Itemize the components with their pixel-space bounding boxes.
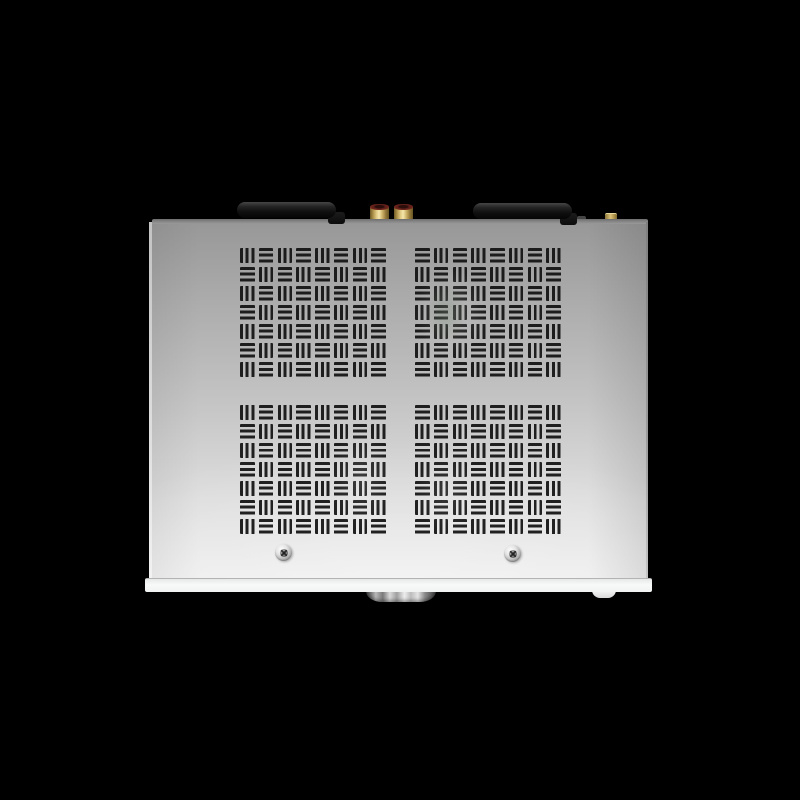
vent-row — [240, 462, 386, 477]
vent-row — [240, 362, 386, 377]
vent-slots-horizontal — [434, 424, 449, 439]
vent-slots-vertical — [278, 362, 293, 377]
vent-slots-vertical — [353, 519, 368, 534]
vent-slots-horizontal — [528, 286, 543, 301]
vent-slots-horizontal — [415, 443, 430, 458]
vent-slots-horizontal — [453, 405, 468, 420]
vent-slots-horizontal — [471, 500, 486, 515]
vent-slots-horizontal — [278, 305, 293, 320]
vent-slots-horizontal — [453, 286, 468, 301]
vent-slots-horizontal — [509, 424, 524, 439]
vent-slots-horizontal — [334, 286, 349, 301]
vent-slots-vertical — [546, 324, 561, 339]
screw-head-recess — [280, 549, 288, 557]
vent-slots-horizontal — [353, 267, 368, 282]
vent-slots-vertical — [528, 267, 543, 282]
vent-slots-vertical — [490, 500, 505, 515]
vent-slots-horizontal — [371, 519, 386, 534]
wifi-antenna-right — [473, 203, 572, 219]
vent-slots-horizontal — [315, 462, 330, 477]
vent-slots-horizontal — [528, 324, 543, 339]
vent-slots-vertical — [415, 424, 430, 439]
vent-row — [415, 481, 561, 496]
vent-slots-horizontal — [490, 519, 505, 534]
vent-slots-horizontal — [434, 343, 449, 358]
vent-slots-vertical — [434, 405, 449, 420]
vent-slots-vertical — [471, 443, 486, 458]
vent-slots-horizontal — [259, 481, 274, 496]
vent-slots-vertical — [453, 305, 468, 320]
vent-slots-horizontal — [315, 424, 330, 439]
vent-slots-vertical — [490, 343, 505, 358]
vent-slots-vertical — [471, 405, 486, 420]
vent-row — [240, 519, 386, 534]
vent-slots-horizontal — [453, 519, 468, 534]
vent-slots-vertical — [453, 462, 468, 477]
vent-slots-vertical — [509, 362, 524, 377]
vent-slots-horizontal — [528, 481, 543, 496]
vent-slots-vertical — [528, 462, 543, 477]
vent-slots-horizontal — [453, 362, 468, 377]
vent-slots-vertical — [509, 519, 524, 534]
vent-slots-vertical — [240, 286, 255, 301]
vent-slots-horizontal — [453, 481, 468, 496]
vent-row — [240, 481, 386, 496]
vent-slots-horizontal — [259, 443, 274, 458]
vent-slots-horizontal — [546, 343, 561, 358]
vent-slots-horizontal — [353, 424, 368, 439]
vent-slots-horizontal — [415, 286, 430, 301]
vent-slots-horizontal — [334, 248, 349, 263]
vent-slots-horizontal — [278, 462, 293, 477]
vent-slots-vertical — [259, 424, 274, 439]
vent-slots-vertical — [240, 248, 255, 263]
vent-slots-horizontal — [371, 362, 386, 377]
vent-row — [240, 443, 386, 458]
vent-slots-horizontal — [509, 500, 524, 515]
vent-slots-vertical — [528, 305, 543, 320]
vent-slots-vertical — [415, 343, 430, 358]
vent-slots-vertical — [434, 286, 449, 301]
vent-slots-vertical — [371, 267, 386, 282]
vent-row — [415, 286, 561, 301]
vent-slots-vertical — [296, 424, 311, 439]
vent-slots-horizontal — [278, 343, 293, 358]
vent-slots-vertical — [296, 267, 311, 282]
vent-row — [415, 267, 561, 282]
vent-row — [415, 443, 561, 458]
vent-slots-horizontal — [528, 362, 543, 377]
vent-slots-horizontal — [278, 500, 293, 515]
vent-slots-horizontal — [296, 519, 311, 534]
vent-slots-horizontal — [315, 267, 330, 282]
vent-slots-horizontal — [415, 405, 430, 420]
vent-slots-horizontal — [334, 324, 349, 339]
screw-head-recess — [509, 550, 517, 558]
vent-slots-horizontal — [471, 424, 486, 439]
rca-jack-cap-right — [394, 204, 413, 210]
vent-slots-horizontal — [434, 462, 449, 477]
vent-slots-vertical — [334, 500, 349, 515]
vent-row — [240, 500, 386, 515]
vent-slots-horizontal — [371, 286, 386, 301]
vent-slots-vertical — [259, 267, 274, 282]
vent-row — [415, 519, 561, 534]
vent-slots-horizontal — [415, 481, 430, 496]
vent-slots-vertical — [259, 343, 274, 358]
vent-row — [240, 424, 386, 439]
vent-row — [415, 248, 561, 263]
vent-slots-horizontal — [434, 500, 449, 515]
vent-slots-horizontal — [415, 519, 430, 534]
vent-slots-vertical — [434, 443, 449, 458]
vent-slots-horizontal — [315, 500, 330, 515]
vent-slots-horizontal — [315, 305, 330, 320]
vent-row — [240, 286, 386, 301]
vent-slots-horizontal — [371, 248, 386, 263]
vent-slots-horizontal — [509, 267, 524, 282]
vent-slots-vertical — [278, 481, 293, 496]
vent-slots-horizontal — [509, 305, 524, 320]
vent-slots-horizontal — [259, 405, 274, 420]
vent-slots-horizontal — [371, 481, 386, 496]
vent-slots-vertical — [296, 305, 311, 320]
vent-slots-horizontal — [296, 324, 311, 339]
vent-slots-horizontal — [509, 343, 524, 358]
product-photo-scene — [0, 0, 800, 800]
vent-slots-vertical — [509, 443, 524, 458]
vent-row — [240, 405, 386, 420]
vent-slots-vertical — [315, 443, 330, 458]
vent-slots-vertical — [371, 424, 386, 439]
vent-slots-horizontal — [353, 305, 368, 320]
vent-slots-horizontal — [296, 362, 311, 377]
vent-slots-vertical — [415, 500, 430, 515]
vent-slots-vertical — [334, 462, 349, 477]
vent-slots-vertical — [509, 324, 524, 339]
vent-slots-vertical — [509, 286, 524, 301]
vent-slots-vertical — [546, 286, 561, 301]
vent-slots-vertical — [471, 324, 486, 339]
vent-slots-vertical — [278, 519, 293, 534]
vent-slots-vertical — [471, 519, 486, 534]
screw-front-left — [275, 544, 292, 561]
vent-slots-horizontal — [453, 324, 468, 339]
vent-slots-horizontal — [240, 343, 255, 358]
vent-slots-horizontal — [240, 500, 255, 515]
vent-slots-vertical — [296, 500, 311, 515]
vent-slots-horizontal — [240, 305, 255, 320]
vent-slots-vertical — [315, 362, 330, 377]
vent-slots-vertical — [434, 362, 449, 377]
vent-slots-vertical — [471, 362, 486, 377]
vent-slots-horizontal — [353, 462, 368, 477]
vent-slots-vertical — [528, 424, 543, 439]
vent-slots-vertical — [434, 248, 449, 263]
vent-slots-horizontal — [334, 519, 349, 534]
vent-slots-vertical — [490, 267, 505, 282]
vent-slots-horizontal — [296, 405, 311, 420]
vent-slots-vertical — [509, 248, 524, 263]
vent-slots-horizontal — [471, 462, 486, 477]
vent-slots-vertical — [546, 481, 561, 496]
vent-grille-top-right — [415, 248, 561, 377]
vent-slots-vertical — [471, 286, 486, 301]
vent-slots-horizontal — [259, 324, 274, 339]
vent-slots-horizontal — [296, 481, 311, 496]
vent-slots-horizontal — [434, 267, 449, 282]
vent-slots-vertical — [509, 405, 524, 420]
screw-front-right — [504, 545, 521, 562]
vent-row — [240, 305, 386, 320]
vent-slots-horizontal — [453, 248, 468, 263]
vent-slots-vertical — [315, 286, 330, 301]
vent-slots-vertical — [240, 481, 255, 496]
vent-slots-horizontal — [334, 405, 349, 420]
vent-slots-horizontal — [528, 519, 543, 534]
vent-slots-horizontal — [353, 500, 368, 515]
vent-slots-vertical — [259, 500, 274, 515]
wifi-antenna-left — [237, 202, 336, 218]
vent-slots-vertical — [278, 248, 293, 263]
vent-slots-vertical — [315, 405, 330, 420]
vent-slots-horizontal — [240, 424, 255, 439]
vent-slots-horizontal — [490, 481, 505, 496]
vent-slots-vertical — [278, 405, 293, 420]
vent-slots-vertical — [490, 424, 505, 439]
rca-jack-cap-left — [370, 204, 389, 210]
vent-slots-horizontal — [353, 343, 368, 358]
vent-slots-vertical — [259, 305, 274, 320]
vent-grille-bottom-left — [240, 405, 386, 534]
vent-row — [415, 343, 561, 358]
vent-slots-vertical — [240, 324, 255, 339]
vent-slots-vertical — [353, 405, 368, 420]
vent-slots-vertical — [471, 248, 486, 263]
vent-slots-vertical — [509, 481, 524, 496]
vent-slots-vertical — [353, 286, 368, 301]
vent-grille-top-left — [240, 248, 386, 377]
vent-grille-bottom-right — [415, 405, 561, 534]
vent-slots-vertical — [546, 362, 561, 377]
vent-row — [240, 267, 386, 282]
vent-slots-vertical — [240, 443, 255, 458]
vent-slots-horizontal — [259, 519, 274, 534]
vent-slots-horizontal — [434, 305, 449, 320]
vent-slots-horizontal — [528, 405, 543, 420]
vent-slots-vertical — [490, 462, 505, 477]
vent-slots-vertical — [371, 462, 386, 477]
chassis-right-edge-shade — [646, 222, 648, 578]
vent-slots-horizontal — [490, 324, 505, 339]
vent-slots-vertical — [334, 267, 349, 282]
vent-slots-vertical — [453, 424, 468, 439]
vent-slots-horizontal — [546, 462, 561, 477]
vent-slots-horizontal — [259, 248, 274, 263]
vent-slots-horizontal — [471, 305, 486, 320]
vent-slots-horizontal — [490, 248, 505, 263]
vent-row — [415, 462, 561, 477]
vent-slots-horizontal — [546, 305, 561, 320]
vent-slots-vertical — [490, 305, 505, 320]
vent-slots-vertical — [259, 462, 274, 477]
vent-slots-horizontal — [259, 286, 274, 301]
vent-row — [240, 343, 386, 358]
vent-slots-horizontal — [528, 248, 543, 263]
vent-slots-vertical — [434, 481, 449, 496]
vent-row — [240, 248, 386, 263]
vent-row — [415, 424, 561, 439]
vent-row — [240, 324, 386, 339]
vent-slots-horizontal — [546, 500, 561, 515]
vent-slots-vertical — [334, 305, 349, 320]
vent-slots-horizontal — [415, 248, 430, 263]
vent-slots-vertical — [278, 443, 293, 458]
vent-slots-vertical — [546, 443, 561, 458]
vent-slots-vertical — [296, 462, 311, 477]
vent-slots-vertical — [315, 481, 330, 496]
vent-slots-vertical — [334, 424, 349, 439]
vent-slots-horizontal — [528, 443, 543, 458]
vent-slots-vertical — [240, 362, 255, 377]
vent-slots-vertical — [371, 305, 386, 320]
vent-slots-vertical — [546, 405, 561, 420]
vent-slots-horizontal — [278, 267, 293, 282]
vent-row — [415, 362, 561, 377]
vent-slots-horizontal — [546, 267, 561, 282]
vent-slots-vertical — [353, 362, 368, 377]
vent-slots-horizontal — [490, 405, 505, 420]
vent-row — [415, 500, 561, 515]
vent-slots-vertical — [315, 324, 330, 339]
vent-slots-horizontal — [296, 286, 311, 301]
vent-slots-vertical — [278, 286, 293, 301]
vent-slots-vertical — [546, 248, 561, 263]
vent-slots-vertical — [315, 519, 330, 534]
vent-slots-vertical — [528, 500, 543, 515]
vent-slots-vertical — [240, 405, 255, 420]
vent-slots-vertical — [371, 343, 386, 358]
vent-slots-vertical — [353, 324, 368, 339]
vent-slots-vertical — [353, 248, 368, 263]
chassis-left-edge-highlight — [149, 222, 152, 578]
vent-slots-vertical — [353, 481, 368, 496]
vent-slots-vertical — [434, 519, 449, 534]
vent-slots-vertical — [415, 462, 430, 477]
vent-slots-horizontal — [415, 324, 430, 339]
vent-row — [415, 324, 561, 339]
vent-slots-vertical — [415, 305, 430, 320]
vent-slots-horizontal — [471, 267, 486, 282]
vent-slots-horizontal — [490, 362, 505, 377]
vent-slots-horizontal — [371, 324, 386, 339]
vent-slots-vertical — [453, 267, 468, 282]
vent-slots-horizontal — [278, 424, 293, 439]
vent-slots-vertical — [434, 324, 449, 339]
vent-slots-vertical — [453, 500, 468, 515]
vent-slots-vertical — [353, 443, 368, 458]
vent-slots-horizontal — [509, 462, 524, 477]
vent-slots-horizontal — [259, 362, 274, 377]
vent-slots-vertical — [453, 343, 468, 358]
vent-slots-horizontal — [240, 462, 255, 477]
vent-slots-horizontal — [371, 405, 386, 420]
vent-slots-vertical — [415, 267, 430, 282]
vent-slots-vertical — [296, 343, 311, 358]
vent-slots-vertical — [371, 500, 386, 515]
vent-slots-horizontal — [296, 248, 311, 263]
vent-row — [415, 305, 561, 320]
vent-slots-horizontal — [490, 286, 505, 301]
vent-slots-horizontal — [546, 424, 561, 439]
vent-slots-horizontal — [415, 362, 430, 377]
vent-slots-vertical — [278, 324, 293, 339]
vent-slots-horizontal — [371, 443, 386, 458]
vent-slots-vertical — [546, 519, 561, 534]
vent-slots-vertical — [528, 343, 543, 358]
vent-slots-vertical — [240, 519, 255, 534]
vent-slots-vertical — [471, 481, 486, 496]
vent-slots-horizontal — [315, 343, 330, 358]
front-panel-strip — [145, 578, 652, 592]
vent-slots-horizontal — [334, 362, 349, 377]
vent-slots-horizontal — [490, 443, 505, 458]
vent-slots-horizontal — [334, 443, 349, 458]
chassis-top-surface — [149, 224, 648, 578]
vent-slots-horizontal — [334, 481, 349, 496]
vent-row — [415, 405, 561, 420]
vent-slots-horizontal — [240, 267, 255, 282]
vent-slots-horizontal — [453, 443, 468, 458]
vent-slots-horizontal — [471, 343, 486, 358]
vent-slots-vertical — [334, 343, 349, 358]
vent-slots-horizontal — [296, 443, 311, 458]
vent-slots-vertical — [315, 248, 330, 263]
